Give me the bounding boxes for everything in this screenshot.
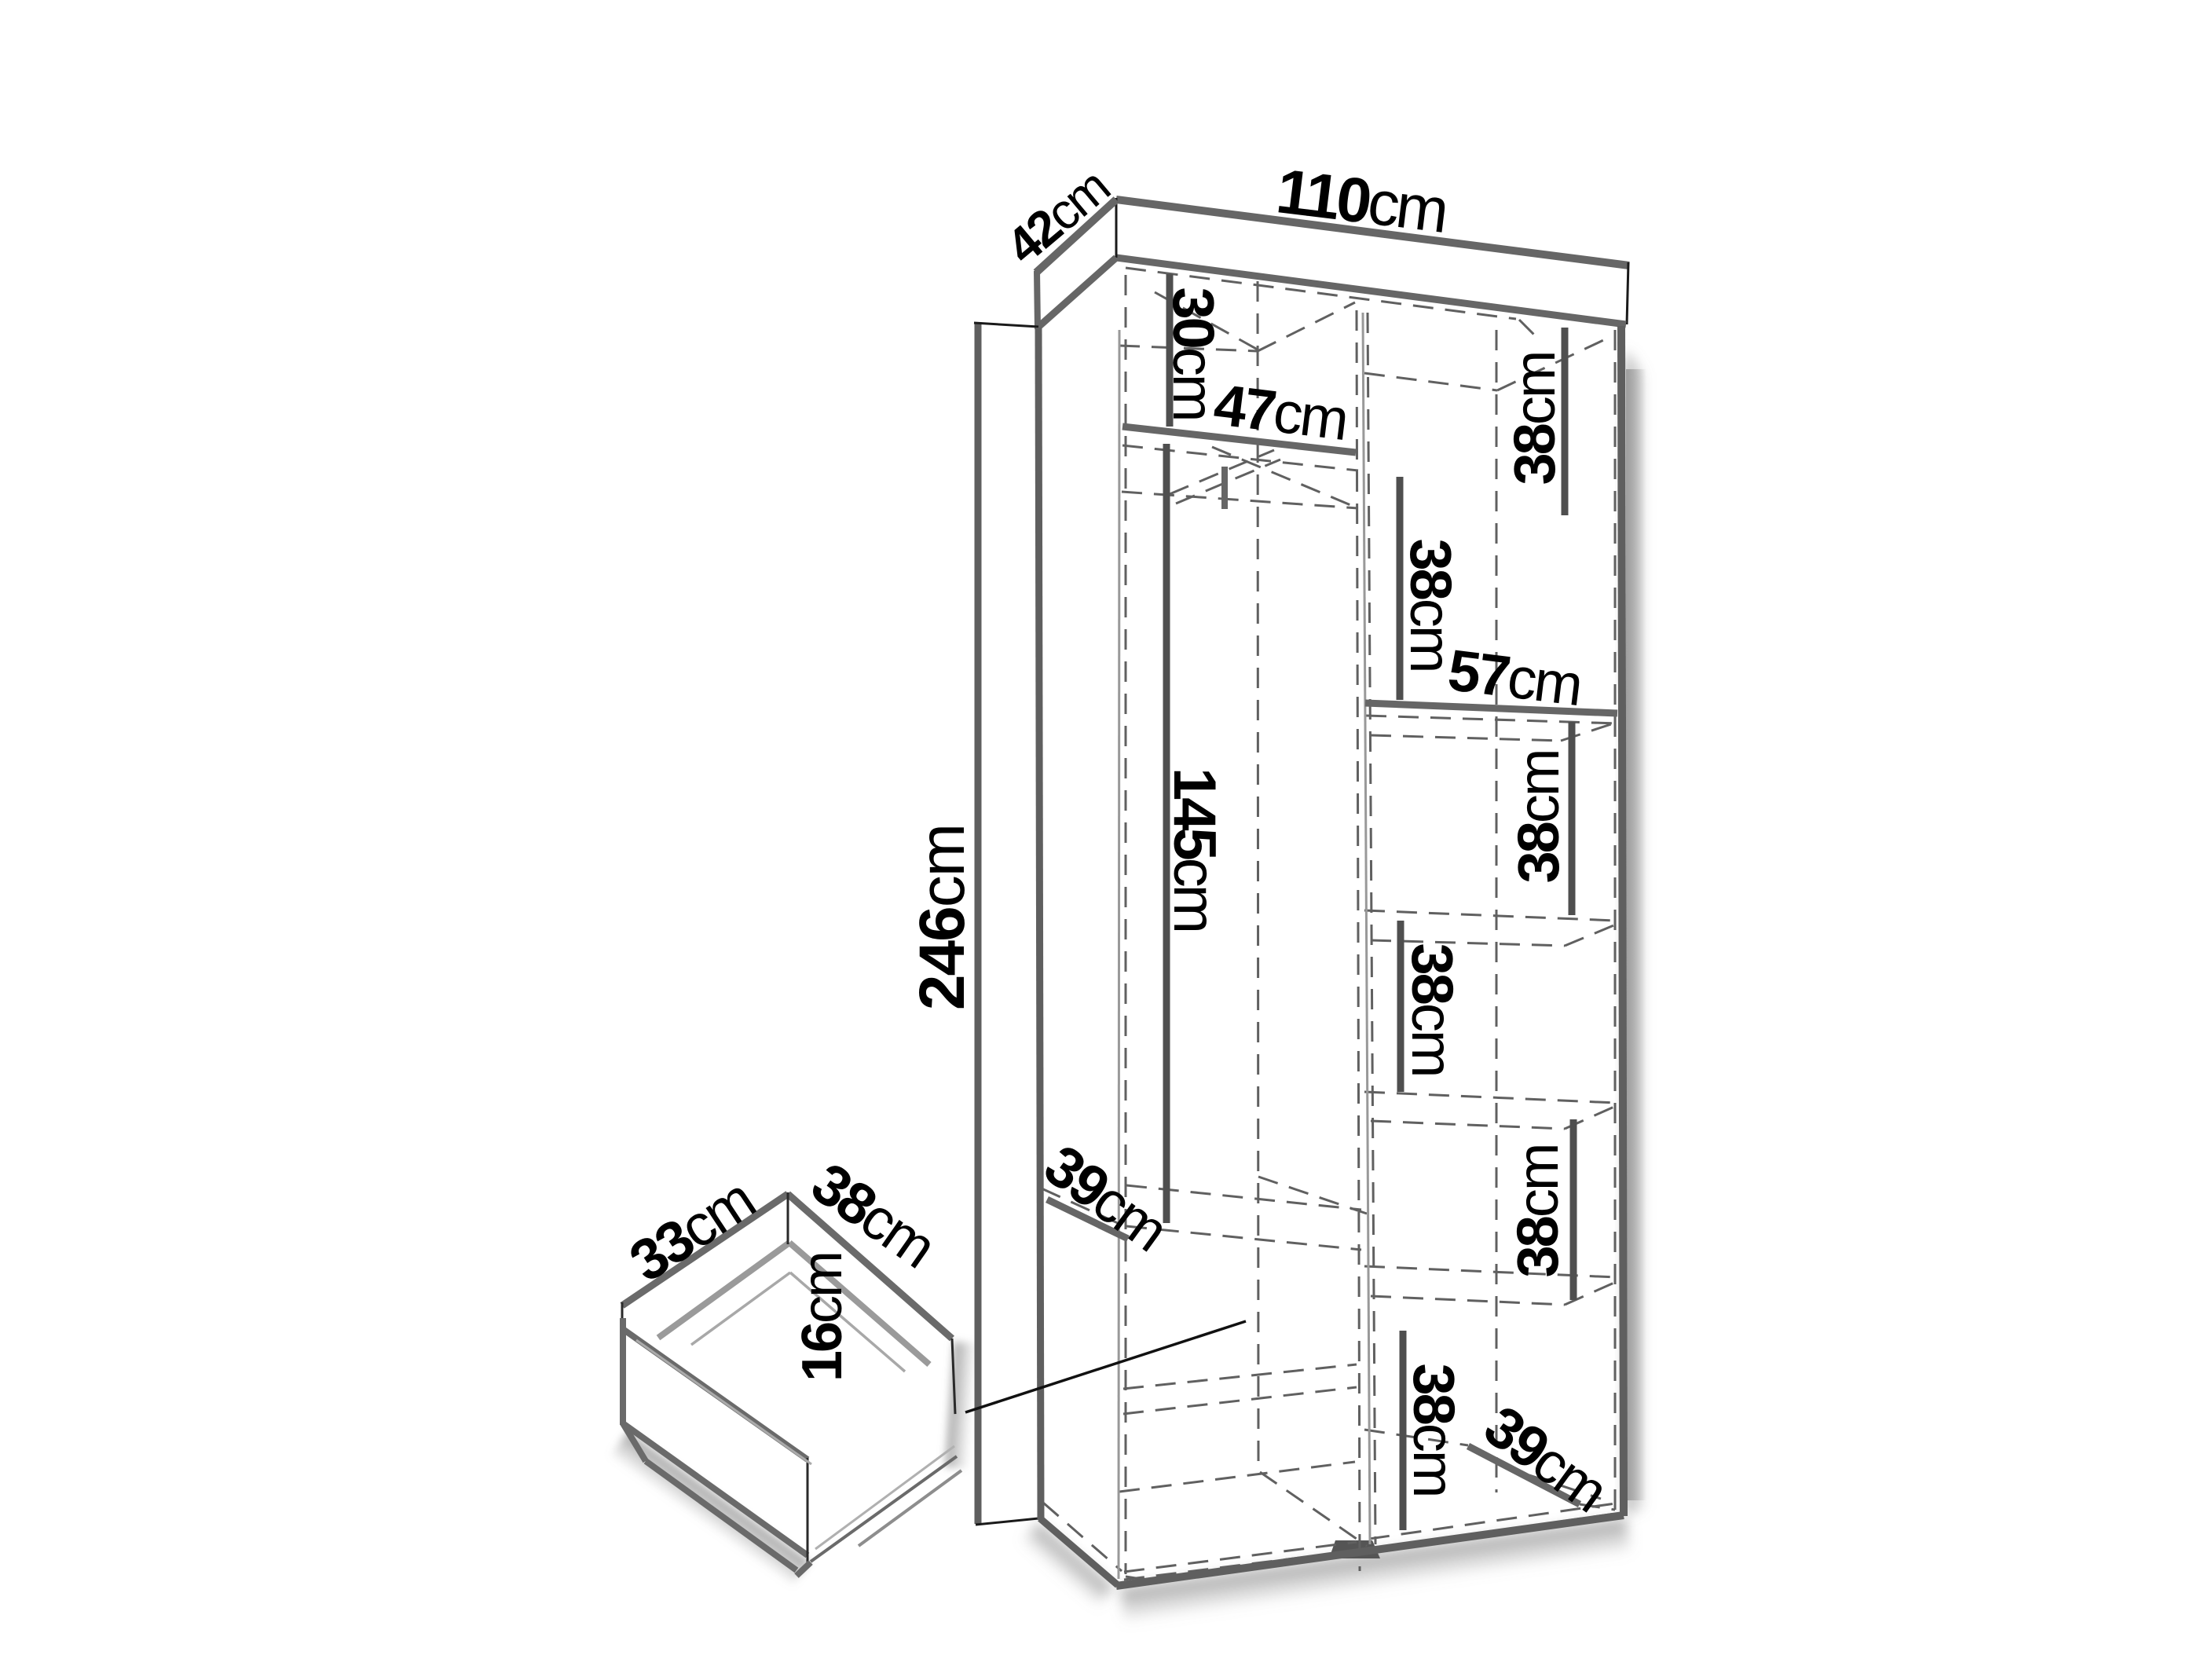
svg-text:38cm: 38cm xyxy=(1502,353,1567,485)
svg-text:246cm: 246cm xyxy=(906,825,978,1010)
svg-text:38cm: 38cm xyxy=(1402,1364,1467,1496)
svg-text:16cm: 16cm xyxy=(791,1253,854,1382)
svg-text:38cm: 38cm xyxy=(1505,1145,1570,1278)
svg-text:145cm: 145cm xyxy=(1162,767,1229,931)
svg-text:38cm: 38cm xyxy=(1506,751,1571,884)
svg-text:38cm: 38cm xyxy=(1401,943,1466,1076)
